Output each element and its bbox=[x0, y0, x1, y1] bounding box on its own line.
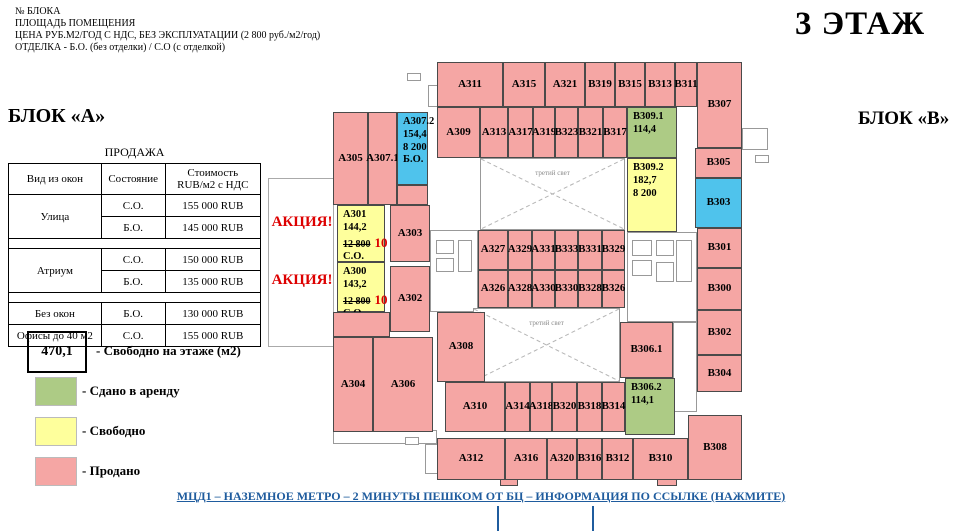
map-pointer-line bbox=[497, 506, 499, 531]
room-в305: В305 bbox=[695, 148, 742, 178]
room-info-line: 143,2 bbox=[343, 279, 384, 292]
room-в318: В318 bbox=[577, 382, 602, 432]
corridor bbox=[673, 322, 697, 412]
room-tag-chip bbox=[405, 437, 419, 445]
elevator-shaft bbox=[436, 240, 454, 254]
room-в316: В316 bbox=[577, 438, 602, 480]
room-а301: А301144,212 80010 500С.О. bbox=[337, 205, 385, 262]
room-а328: А328 bbox=[508, 270, 532, 308]
room-в303: В303 bbox=[695, 178, 742, 228]
room-id: В309.2 bbox=[633, 162, 676, 175]
room-в326: В326 bbox=[602, 270, 625, 308]
room-в307: В307 bbox=[697, 62, 742, 148]
room-в321: В321 bbox=[578, 107, 603, 158]
room-в312: В312 bbox=[602, 438, 633, 480]
room-info-line: 8 200 bbox=[403, 142, 427, 155]
room-в323: В323 bbox=[555, 107, 578, 158]
room-а316: А316 bbox=[505, 438, 547, 480]
room-в314: В314 bbox=[602, 382, 625, 432]
room-в311: В311 bbox=[675, 62, 697, 107]
room-в309.2: В309.2182,78 200 bbox=[627, 158, 677, 232]
room-id: А301 bbox=[343, 209, 384, 222]
room-в330: В330 bbox=[555, 270, 578, 308]
room-а308: А308 bbox=[437, 312, 485, 382]
room-а320: А320 bbox=[547, 438, 577, 480]
stairwell bbox=[676, 240, 692, 282]
room-id: В306.2 bbox=[631, 382, 674, 395]
room-id: А300 bbox=[343, 266, 384, 279]
room-в313: В313 bbox=[645, 62, 675, 107]
room-а314: А314 bbox=[505, 382, 530, 432]
room-а329: А329 bbox=[508, 230, 532, 270]
atrium-light-well: третий свет bbox=[473, 308, 620, 382]
room-в306.2: В306.2114,1 bbox=[625, 378, 675, 435]
room-promo-price: 12 80010 500 bbox=[343, 292, 384, 309]
room-а319: А319 bbox=[533, 107, 555, 158]
page: № БЛОКА ПЛОЩАДЬ ПОМЕЩЕНИЯ ЦЕНА РУБ.М2/ГО… bbox=[0, 0, 962, 531]
external-stair bbox=[742, 128, 768, 150]
room-а309: А309 bbox=[437, 107, 480, 158]
elevator-shaft bbox=[436, 258, 454, 272]
room-в304: В304 bbox=[697, 355, 742, 392]
room-а327: А327 bbox=[478, 230, 508, 270]
room-tag-chip bbox=[755, 155, 769, 163]
service-room bbox=[458, 240, 472, 272]
room-в315: В315 bbox=[615, 62, 645, 107]
room-а326: А326 bbox=[478, 270, 508, 308]
room-в319: В319 bbox=[585, 62, 615, 107]
corridor bbox=[333, 430, 437, 444]
metro-info-link[interactable]: МЦД1 – НАЗЕМНОЕ МЕТРО – 2 МИНУТЫ ПЕШКОМ … bbox=[0, 489, 962, 504]
room-unlabeled bbox=[333, 312, 390, 337]
service-room bbox=[656, 240, 674, 256]
room-а330: А330 bbox=[532, 270, 555, 308]
room-а331: А331 bbox=[532, 230, 555, 270]
room-а313: А313 bbox=[480, 107, 508, 158]
room-id: А307.2 bbox=[403, 116, 427, 129]
room-а303: А303 bbox=[390, 205, 430, 262]
room-а315: А315 bbox=[503, 62, 545, 107]
service-room bbox=[632, 240, 652, 256]
room-info-line: 114,4 bbox=[633, 124, 676, 137]
room-а305: А305 bbox=[333, 112, 368, 205]
room-в301: В301 bbox=[697, 228, 742, 268]
old-price: 12 800 bbox=[343, 239, 371, 250]
room-а317: А317 bbox=[508, 107, 533, 158]
floor-plan: третий свет третий свет А311А315А321В319… bbox=[0, 0, 962, 531]
room-в309.1: В309.1114,4 bbox=[627, 107, 677, 158]
room-в331: В331 bbox=[578, 230, 602, 270]
room-в328: В328 bbox=[578, 270, 602, 308]
room-а306: А306 bbox=[373, 337, 433, 432]
room-а310: А310 bbox=[445, 382, 505, 432]
atrium-label: третий свет bbox=[481, 169, 624, 177]
room-info-line: 154,4 bbox=[403, 129, 427, 142]
room-а321: А321 bbox=[545, 62, 585, 107]
room-в310: В310 bbox=[633, 438, 688, 480]
room-info-line: 144,2 bbox=[343, 222, 384, 235]
room-в308: В308 bbox=[688, 415, 742, 480]
room-в302: В302 bbox=[697, 310, 742, 355]
room-в300: В300 bbox=[697, 268, 742, 310]
room-в329: В329 bbox=[602, 230, 625, 270]
room-а312: А312 bbox=[437, 438, 505, 480]
room-info-line: 8 200 bbox=[633, 188, 676, 201]
room-а318: А318 bbox=[530, 382, 552, 432]
room-а302: А302 bbox=[390, 266, 430, 332]
room-в320: В320 bbox=[552, 382, 577, 432]
room-в333: В333 bbox=[555, 230, 578, 270]
room-tag-chip bbox=[407, 73, 421, 81]
room-info-line: 114,1 bbox=[631, 395, 674, 408]
map-pointer-line bbox=[592, 506, 594, 531]
atrium-label: третий свет bbox=[474, 319, 619, 327]
room-а300: А300143,212 80010 500С.О. bbox=[337, 262, 385, 312]
room-а311: А311 bbox=[437, 62, 503, 107]
room-а307.1: А307.1 bbox=[368, 112, 397, 205]
room-id: В309.1 bbox=[633, 111, 676, 124]
room-info-line: Б.О. bbox=[403, 154, 427, 167]
atrium-light-well: третий свет bbox=[480, 158, 625, 230]
service-room bbox=[632, 260, 652, 276]
old-price: 12 800 bbox=[343, 296, 371, 307]
room-в317: В317 bbox=[603, 107, 627, 158]
room-unlabeled bbox=[397, 185, 428, 205]
room-promo-price: 12 80010 500 bbox=[343, 235, 384, 252]
room-а304: А304 bbox=[333, 337, 373, 432]
service-room bbox=[656, 262, 674, 282]
room-а307.2: А307.2154,48 200Б.О. bbox=[397, 112, 428, 185]
room-в306.1: В306.1 bbox=[620, 322, 673, 378]
room-info-line: 182,7 bbox=[633, 175, 676, 188]
